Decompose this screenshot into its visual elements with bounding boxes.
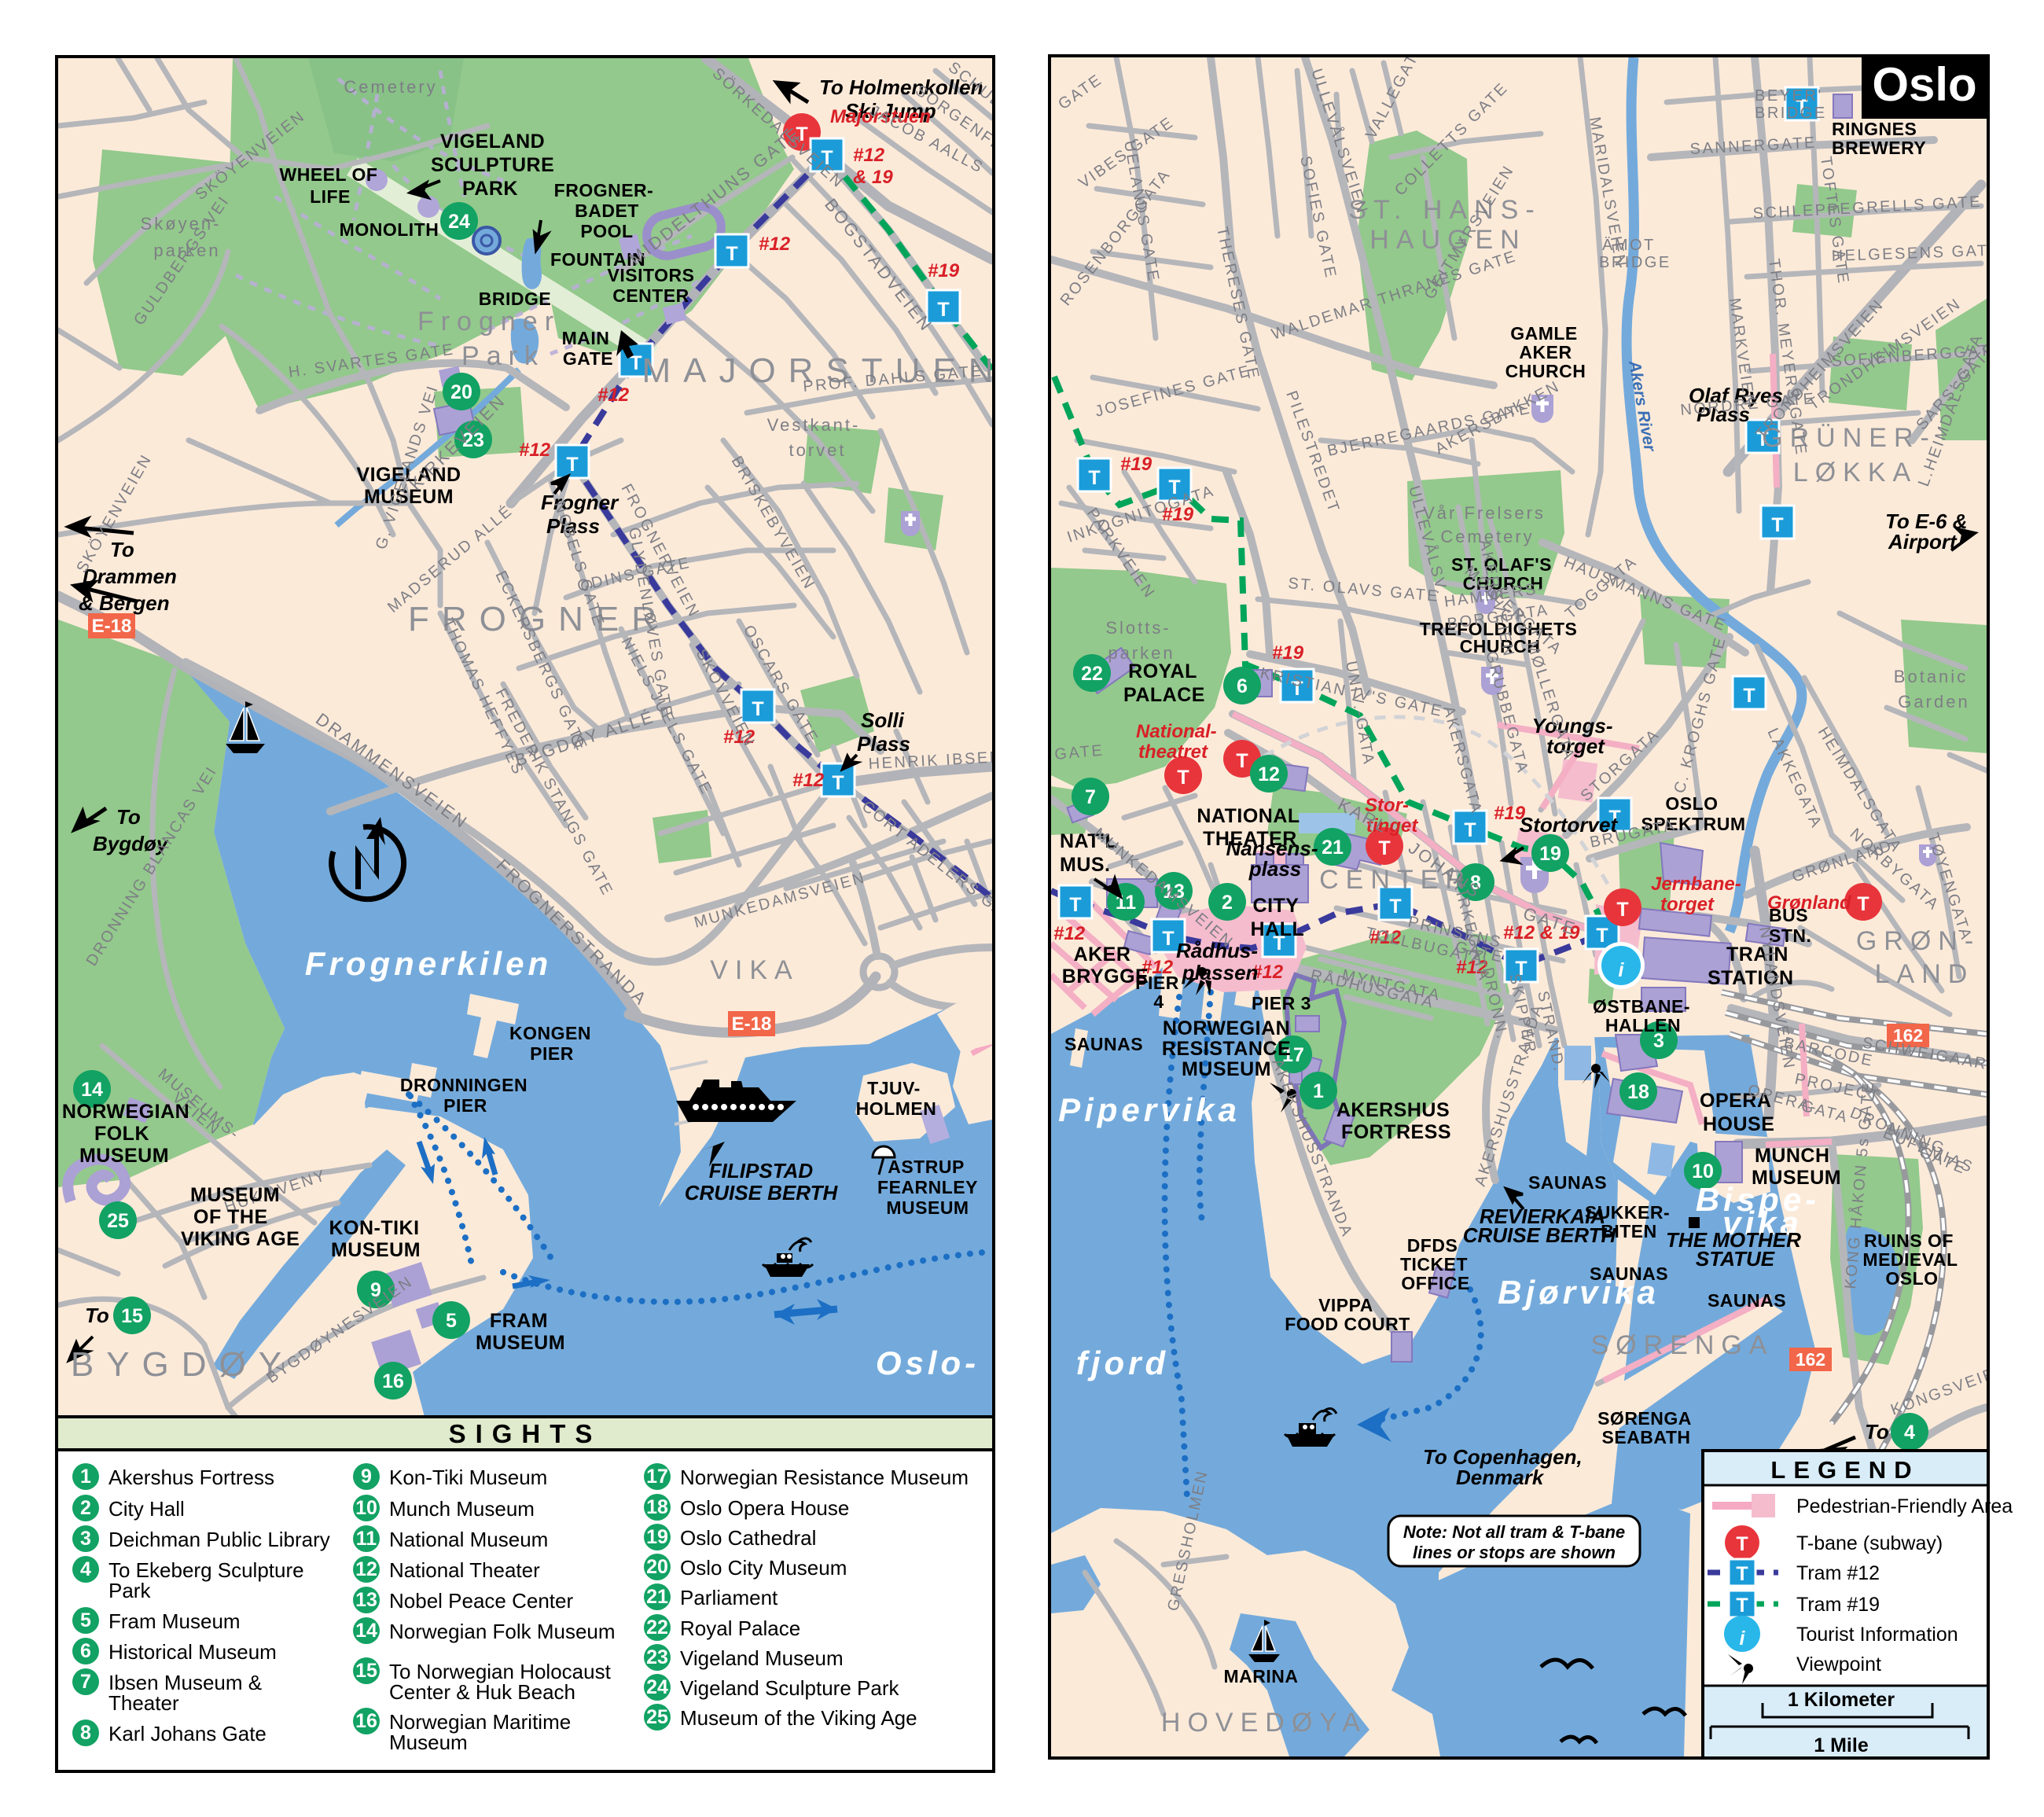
svg-text:MEDIEVAL: MEDIEVAL <box>1862 1249 1958 1270</box>
svg-text:VIKING AGE: VIKING AGE <box>181 1228 300 1250</box>
svg-text:MONOLITH: MONOLITH <box>340 219 439 240</box>
svg-text:T: T <box>752 698 763 720</box>
svg-text:WHEEL OF: WHEEL OF <box>280 164 378 185</box>
svg-text:NORWEGIAN: NORWEGIAN <box>62 1101 189 1123</box>
svg-text:AKER: AKER <box>1074 943 1131 966</box>
svg-text:Frogner: Frogner <box>417 307 561 337</box>
svg-text:Kon-Tiki Museum: Kon-Tiki Museum <box>389 1466 547 1489</box>
svg-text:5: 5 <box>80 1609 91 1631</box>
svg-text:BRIDGE: BRIDGE <box>1599 254 1671 271</box>
svg-text:ASTRUP: ASTRUP <box>888 1157 965 1177</box>
svg-text:OSLO: OSLO <box>1885 1268 1938 1289</box>
svg-text:Plass: Plass <box>857 732 910 756</box>
svg-text:1 Kilometer: 1 Kilometer <box>1788 1689 1895 1711</box>
svg-text:plassen: plassen <box>1182 961 1259 984</box>
svg-text:torget: torget <box>1660 894 1715 915</box>
svg-text:16: 16 <box>382 1370 404 1392</box>
svg-text:T: T <box>1736 1533 1748 1555</box>
svg-text:AKERSHUS: AKERSHUS <box>1336 1099 1450 1121</box>
svg-text:5: 5 <box>446 1310 457 1332</box>
svg-text:7: 7 <box>1085 786 1096 808</box>
svg-text:T: T <box>1616 899 1628 921</box>
svg-text:MUSEUM: MUSEUM <box>79 1145 169 1167</box>
svg-text:City Hall: City Hall <box>108 1497 185 1521</box>
svg-text:LØKKA: LØKKA <box>1793 458 1917 487</box>
svg-text:17: 17 <box>646 1466 668 1488</box>
svg-text:SØRENGA: SØRENGA <box>1597 1408 1692 1429</box>
svg-text:MUSEUM: MUSEUM <box>476 1332 565 1354</box>
svg-text:T: T <box>832 772 844 794</box>
svg-text:162: 162 <box>1796 1349 1825 1370</box>
svg-text:HALLEN: HALLEN <box>1605 1015 1681 1035</box>
svg-text:2: 2 <box>1222 892 1233 914</box>
svg-text:MUSEUM: MUSEUM <box>886 1197 969 1218</box>
svg-text:Park: Park <box>108 1579 151 1602</box>
svg-text:Garden: Garden <box>1898 692 1969 712</box>
svg-text:19: 19 <box>646 1526 668 1548</box>
svg-text:Oslo-: Oslo- <box>876 1344 980 1381</box>
svg-text:FOOD COURT: FOOD COURT <box>1285 1314 1410 1334</box>
svg-text:Theater: Theater <box>108 1691 179 1715</box>
svg-text:T: T <box>1088 467 1100 489</box>
svg-text:KONGEN: KONGEN <box>509 1023 591 1043</box>
svg-text:Drammen: Drammen <box>83 565 177 588</box>
svg-text:24: 24 <box>448 211 470 233</box>
svg-text:Vigeland Museum: Vigeland Museum <box>680 1646 844 1670</box>
svg-text:VISITORS: VISITORS <box>608 265 695 285</box>
svg-text:Center & Huk Beach: Center & Huk Beach <box>389 1680 575 1704</box>
svg-text:MUS.: MUS. <box>1060 854 1111 876</box>
svg-text:Park: Park <box>461 341 545 371</box>
svg-text:#12: #12 <box>759 234 791 255</box>
svg-text:CENTER: CENTER <box>612 285 689 306</box>
svg-text:VIKA: VIKA <box>710 955 799 985</box>
svg-text:BEYER': BEYER' <box>1755 87 1823 105</box>
svg-text:AKER: AKER <box>1519 342 1572 362</box>
svg-text:T: T <box>1069 894 1081 916</box>
svg-text:13: 13 <box>355 1589 377 1611</box>
svg-text:23: 23 <box>646 1646 668 1668</box>
svg-text:To: To <box>1865 1420 1889 1444</box>
svg-text:20: 20 <box>450 381 472 403</box>
svg-text:FROGNER-: FROGNER- <box>554 180 654 200</box>
svg-text:MUSEUM: MUSEUM <box>331 1239 421 1261</box>
svg-text:Jernbane-: Jernbane- <box>1651 874 1741 895</box>
svg-text:Vigeland Sculpture Park: Vigeland Sculpture Park <box>680 1676 899 1700</box>
svg-text:14: 14 <box>355 1620 377 1642</box>
svg-text:Tourist Information: Tourist Information <box>1796 1624 1958 1646</box>
svg-text:ST. HANS-: ST. HANS- <box>1348 195 1541 225</box>
svg-text:T: T <box>937 299 949 321</box>
svg-text:HOLMEN: HOLMEN <box>856 1098 937 1119</box>
svg-text:Note: Not all tram & T-bane: Note: Not all tram & T-bane <box>1403 1522 1625 1542</box>
svg-text:22: 22 <box>646 1617 668 1639</box>
svg-text:PIER: PIER <box>1135 973 1179 993</box>
svg-text:LAND: LAND <box>1875 959 1975 989</box>
svg-text:OF THE: OF THE <box>193 1206 268 1228</box>
svg-text:To: To <box>110 538 134 561</box>
svg-text:FEARNLEY: FEARNLEY <box>877 1177 978 1197</box>
svg-text:National Museum: National Museum <box>389 1528 548 1551</box>
svg-text:To: To <box>116 805 141 829</box>
svg-text:FOLK: FOLK <box>94 1123 149 1145</box>
svg-text:VIPPA: VIPPA <box>1318 1295 1373 1315</box>
svg-text:torvet: torvet <box>789 440 846 460</box>
svg-text:NATIONAL: NATIONAL <box>1197 805 1300 827</box>
svg-text:Historical Museum: Historical Museum <box>108 1640 277 1664</box>
svg-text:Museum: Museum <box>389 1731 468 1754</box>
svg-text:BREWERY: BREWERY <box>1832 138 1926 158</box>
svg-text:DFDS: DFDS <box>1407 1235 1458 1256</box>
svg-text:HOUSE: HOUSE <box>1703 1113 1774 1135</box>
svg-text:SØRENGA: SØRENGA <box>1590 1330 1774 1360</box>
svg-text:Botanic: Botanic <box>1894 667 1968 686</box>
svg-text:Denmark: Denmark <box>1456 1466 1545 1489</box>
svg-text:Oslo: Oslo <box>1872 58 1976 111</box>
svg-text:RUINS OF: RUINS OF <box>1864 1230 1954 1251</box>
svg-text:Slotts-: Slotts- <box>1105 618 1171 638</box>
svg-text:LEGEND: LEGEND <box>1770 1456 1919 1484</box>
svg-text:SEABATH: SEABATH <box>1602 1427 1691 1447</box>
svg-text:2: 2 <box>80 1497 91 1519</box>
svg-text:Norwegian Folk Museum: Norwegian Folk Museum <box>389 1620 616 1643</box>
svg-text:21: 21 <box>1322 837 1344 859</box>
svg-text:Deichman Public Library: Deichman Public Library <box>108 1528 330 1551</box>
svg-text:#19: #19 <box>1272 642 1304 664</box>
svg-text:10: 10 <box>1692 1160 1714 1183</box>
svg-text:ØSTBANE-: ØSTBANE- <box>1593 996 1690 1017</box>
svg-text:plass: plass <box>1248 857 1302 881</box>
svg-text:25: 25 <box>107 1210 129 1232</box>
svg-text:T: T <box>1378 837 1390 859</box>
svg-text:Airport: Airport <box>1888 530 1958 554</box>
svg-text:Fram Museum: Fram Museum <box>108 1609 241 1633</box>
svg-text:11: 11 <box>356 1528 377 1550</box>
svg-text:7: 7 <box>80 1671 91 1693</box>
svg-text:GRÜNER-: GRÜNER- <box>1762 423 1936 453</box>
svg-text:RINGNES: RINGNES <box>1832 119 1917 139</box>
svg-text:MARINA: MARINA <box>1224 1666 1299 1686</box>
svg-text:SAUNAS: SAUNAS <box>1708 1290 1786 1311</box>
svg-text:fjord: fjord <box>1076 1344 1169 1381</box>
svg-text:T: T <box>1771 514 1783 536</box>
svg-text:CRUISE BERTH: CRUISE BERTH <box>685 1181 839 1205</box>
svg-text:T: T <box>1236 750 1248 772</box>
svg-text:T: T <box>1736 1563 1748 1585</box>
svg-text:OFFICE: OFFICE <box>1401 1273 1469 1293</box>
svg-text:HOVEDØYA: HOVEDØYA <box>1161 1708 1367 1738</box>
svg-text:Pedestrian-Friendly Area: Pedestrian-Friendly Area <box>1796 1495 2013 1517</box>
svg-text:Pipervika: Pipervika <box>1058 1091 1241 1128</box>
svg-text:19: 19 <box>1539 843 1561 865</box>
svg-text:12: 12 <box>355 1558 377 1580</box>
svg-text:T-bane (subway): T-bane (subway) <box>1796 1532 1943 1554</box>
svg-text:MAIN: MAIN <box>562 328 610 348</box>
svg-text:i: i <box>1619 959 1625 981</box>
svg-text:PIER 3: PIER 3 <box>1252 993 1311 1013</box>
svg-text:& 19: & 19 <box>853 167 893 188</box>
svg-text:BADET: BADET <box>575 200 639 221</box>
svg-text:& Bergen: & Bergen <box>79 591 170 615</box>
svg-text:ROYAL: ROYAL <box>1128 660 1197 682</box>
svg-text:4: 4 <box>1153 991 1164 1012</box>
svg-text:Vestkant-: Vestkant- <box>767 415 861 435</box>
svg-text:BYGDØY: BYGDØY <box>71 1345 294 1384</box>
svg-text:CHURCH: CHURCH <box>1505 361 1586 381</box>
svg-text:FORTRESS: FORTRESS <box>1341 1121 1451 1143</box>
svg-text:T: T <box>1464 819 1476 841</box>
svg-text:#12: #12 <box>519 440 551 461</box>
svg-text:Royal Palace: Royal Palace <box>680 1617 800 1640</box>
svg-text:GAMLE: GAMLE <box>1510 323 1578 344</box>
svg-text:SAUNAS: SAUNAS <box>1528 1172 1607 1193</box>
svg-text:E-18: E-18 <box>92 616 132 637</box>
svg-text:STATUE: STATUE <box>1696 1247 1775 1271</box>
svg-text:KON-TIKI: KON-TIKI <box>329 1217 419 1239</box>
svg-text:HALL: HALL <box>1251 918 1305 940</box>
svg-text:4: 4 <box>1904 1422 1915 1444</box>
svg-text:14: 14 <box>81 1079 103 1101</box>
svg-text:Vår Frelsers: Vår Frelsers <box>1423 503 1546 523</box>
svg-text:1: 1 <box>80 1466 91 1488</box>
svg-text:GATE: GATE <box>563 348 613 369</box>
svg-text:T: T <box>566 454 578 476</box>
svg-text:SIGHTS: SIGHTS <box>449 1419 602 1448</box>
svg-text:8: 8 <box>80 1722 91 1744</box>
svg-text:Cemetery: Cemetery <box>344 77 437 97</box>
svg-text:20: 20 <box>646 1556 668 1578</box>
svg-text:Tram #12: Tram #12 <box>1796 1562 1880 1584</box>
svg-text:T: T <box>1857 893 1869 915</box>
svg-text:4: 4 <box>80 1558 91 1580</box>
svg-text:RESISTANCE: RESISTANCE <box>1162 1038 1291 1060</box>
svg-text:TICKET: TICKET <box>1400 1254 1468 1274</box>
svg-text:Karl Johans Gate: Karl Johans Gate <box>108 1722 267 1745</box>
svg-text:T: T <box>1389 896 1401 918</box>
svg-text:21: 21 <box>646 1586 668 1608</box>
svg-text:10: 10 <box>355 1497 377 1519</box>
svg-text:Parliament: Parliament <box>680 1586 778 1609</box>
svg-text:1 Mile: 1 Mile <box>1814 1734 1869 1756</box>
svg-text:T: T <box>1162 928 1174 950</box>
svg-text:NORWEGIAN: NORWEGIAN <box>1163 1017 1290 1039</box>
svg-text:16: 16 <box>355 1710 377 1732</box>
svg-text:i: i <box>1740 1628 1746 1650</box>
svg-text:T: T <box>1743 685 1755 707</box>
svg-text:3: 3 <box>80 1528 91 1550</box>
svg-text:15: 15 <box>121 1305 143 1327</box>
svg-text:Norwegian Resistance Museum: Norwegian Resistance Museum <box>680 1466 969 1489</box>
svg-text:VIGELAND: VIGELAND <box>440 131 545 153</box>
svg-text:9: 9 <box>361 1466 372 1488</box>
svg-text:lines or stops are shown: lines or stops are shown <box>1413 1543 1616 1562</box>
svg-text:T: T <box>726 243 737 265</box>
svg-text:Nobel Peace Center: Nobel Peace Center <box>389 1589 573 1613</box>
svg-text:Oslo Cathedral: Oslo Cathedral <box>680 1526 816 1550</box>
svg-text:Museum of the Viking Age: Museum of the Viking Age <box>680 1706 917 1730</box>
svg-text:6: 6 <box>80 1640 91 1662</box>
svg-text:22: 22 <box>1081 663 1103 685</box>
svg-text:T: T <box>1736 1594 1748 1617</box>
svg-text:MUSEUM: MUSEUM <box>1182 1058 1271 1080</box>
svg-text:12: 12 <box>1258 763 1280 785</box>
svg-text:T: T <box>1596 925 1608 947</box>
svg-text:TJUV-: TJUV- <box>867 1078 921 1098</box>
svg-text:Tram #19: Tram #19 <box>1796 1594 1880 1616</box>
svg-text:PALACE: PALACE <box>1123 684 1205 706</box>
svg-text:PIER: PIER <box>443 1095 487 1116</box>
svg-text:E-18: E-18 <box>732 1013 772 1035</box>
svg-text:25: 25 <box>646 1706 668 1728</box>
svg-text:MUSEUM: MUSEUM <box>190 1184 280 1206</box>
svg-text:FRAM: FRAM <box>490 1310 548 1332</box>
svg-text:Oslo City Museum: Oslo City Museum <box>680 1556 847 1580</box>
svg-text:Oslo Opera House: Oslo Opera House <box>680 1496 849 1520</box>
svg-text:SCULPTURE: SCULPTURE <box>431 154 554 176</box>
svg-text:15: 15 <box>355 1660 377 1682</box>
svg-text:#19: #19 <box>928 260 960 281</box>
svg-text:LIFE: LIFE <box>310 186 351 207</box>
svg-text:POOL: POOL <box>580 221 633 241</box>
svg-text:6: 6 <box>1237 675 1248 697</box>
svg-text:#12: #12 <box>1053 923 1086 944</box>
svg-text:Viewpoint: Viewpoint <box>1796 1653 1881 1675</box>
svg-text:#12: #12 <box>792 770 825 791</box>
svg-text:MUSEUM: MUSEUM <box>1752 1167 1841 1189</box>
svg-text:#12: #12 <box>597 384 630 406</box>
svg-text:#12: #12 <box>853 145 885 166</box>
svg-text:1: 1 <box>1313 1080 1324 1102</box>
svg-text:MUNCH: MUNCH <box>1755 1145 1830 1167</box>
svg-text:T: T <box>1177 767 1189 789</box>
svg-text:BUS: BUS <box>1769 905 1808 925</box>
svg-text:Munch Museum: Munch Museum <box>389 1497 535 1521</box>
svg-text:DRONNINGEN: DRONNINGEN <box>400 1075 528 1095</box>
svg-text:theatret: theatret <box>1138 741 1208 763</box>
svg-text:24: 24 <box>646 1676 668 1698</box>
svg-text:CRUISE BERTH: CRUISE BERTH <box>1463 1223 1617 1247</box>
svg-text:To: To <box>85 1304 109 1327</box>
svg-text:CITY: CITY <box>1253 895 1300 917</box>
svg-text:BRIDGE: BRIDGE <box>1755 105 1827 122</box>
svg-text:SAUNAS: SAUNAS <box>1590 1263 1668 1284</box>
svg-text:PIER: PIER <box>530 1043 574 1064</box>
svg-text:Akershus Fortress: Akershus Fortress <box>108 1466 274 1489</box>
svg-text:FILIPSTAD: FILIPSTAD <box>709 1159 814 1183</box>
svg-text:18: 18 <box>646 1496 668 1518</box>
svg-text:18: 18 <box>1627 1081 1649 1103</box>
svg-text:National Theater: National Theater <box>389 1558 540 1582</box>
svg-text:Frognerkilen: Frognerkilen <box>305 945 552 982</box>
svg-text:National-: National- <box>1136 721 1217 742</box>
svg-text:#19: #19 <box>1120 454 1153 475</box>
svg-text:SAUNAS: SAUNAS <box>1064 1034 1143 1054</box>
svg-text:PARK: PARK <box>462 178 518 200</box>
svg-text:OSLO: OSLO <box>1665 793 1718 814</box>
svg-text:Solli: Solli <box>861 708 905 732</box>
